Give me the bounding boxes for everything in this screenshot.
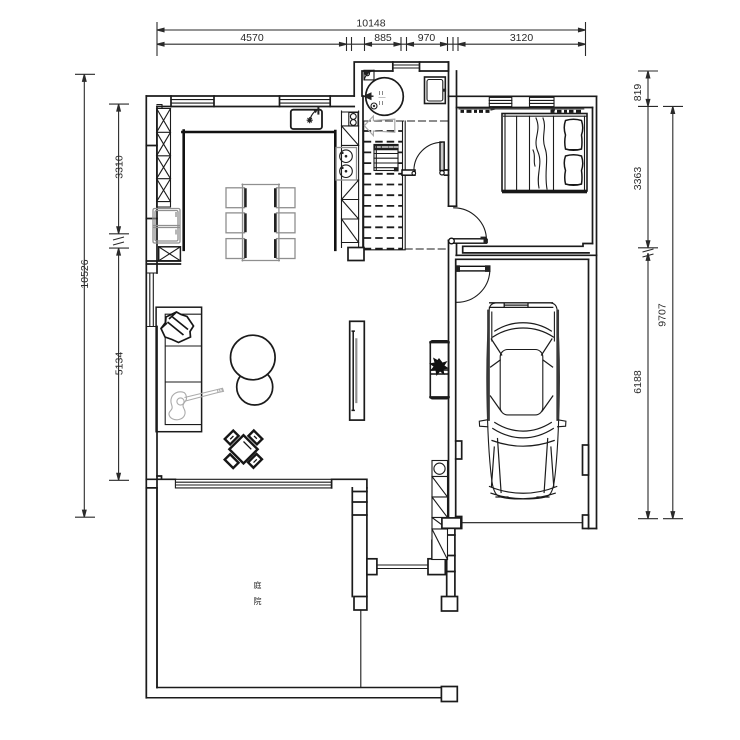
svg-text:院: 院 xyxy=(254,596,262,606)
svg-text:3363: 3363 xyxy=(632,167,644,191)
svg-text:9707: 9707 xyxy=(657,303,669,327)
svg-text:10526: 10526 xyxy=(79,259,91,288)
svg-text:4570: 4570 xyxy=(240,32,264,44)
svg-text:庭: 庭 xyxy=(254,580,262,590)
svg-text:3120: 3120 xyxy=(510,32,534,44)
svg-text:970: 970 xyxy=(418,32,436,44)
svg-text:885: 885 xyxy=(374,32,392,44)
svg-text:3310: 3310 xyxy=(114,155,126,179)
svg-text:10148: 10148 xyxy=(356,18,385,30)
svg-text:5134: 5134 xyxy=(114,352,126,376)
svg-text:819: 819 xyxy=(632,84,644,102)
svg-text:6188: 6188 xyxy=(632,370,644,394)
